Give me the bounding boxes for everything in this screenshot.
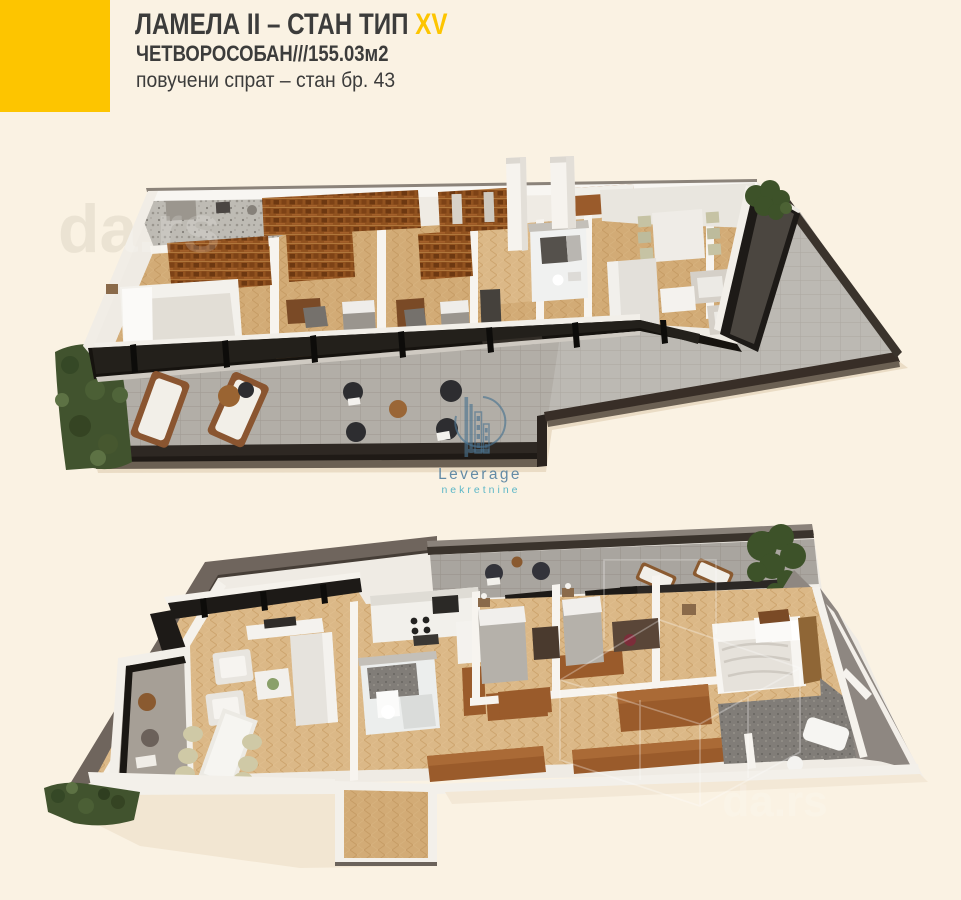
svg-text:da.rs: da.rs	[58, 191, 221, 267]
svg-text:повучени спрат – стан бр. 43: повучени спрат – стан бр. 43	[136, 68, 395, 92]
svg-text:Leverage: Leverage	[438, 466, 522, 483]
svg-text:da.rs: da.rs	[722, 777, 827, 826]
svg-text:ЛАМЕЛА II – СТАН ТИП XV: ЛАМЕЛА II – СТАН ТИП XV	[135, 8, 447, 41]
svg-text:ЧЕТВОРОСОБАН///155.03м2: ЧЕТВОРОСОБАН///155.03м2	[136, 43, 388, 67]
svg-text:nekretnine: nekretnine	[441, 484, 520, 496]
